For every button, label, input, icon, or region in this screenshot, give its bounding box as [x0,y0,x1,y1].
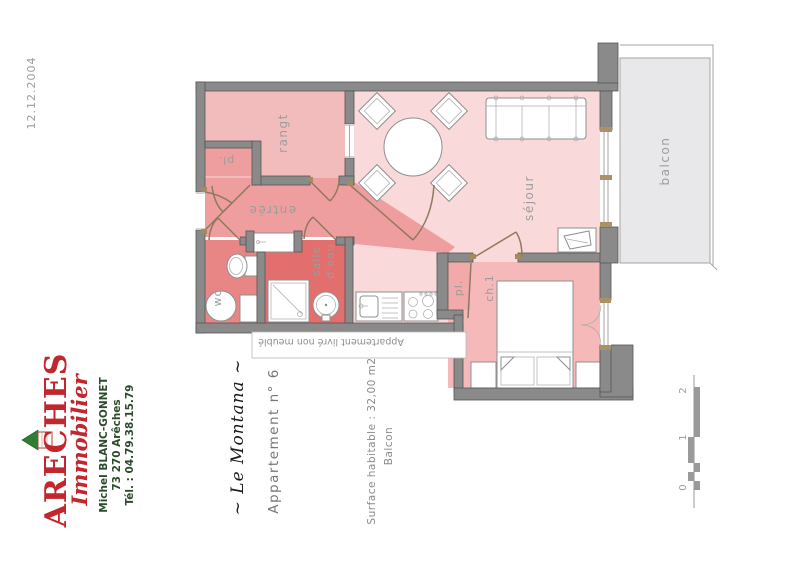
scale-bar: 2 1 0 [678,375,700,508]
floor-plan-page: rangt séjour entrée pl. wc salle d'eau p… [0,0,800,566]
scale-label-0: 0 [678,483,689,490]
agency-contact-city: 73 270 Arêches [111,399,123,490]
placard-chambre-label: pl. [452,280,465,297]
delivery-note-text: Appartement livré non meublé [258,336,404,347]
scale-label-2: 2 [678,386,689,393]
agency-logo: ARECHES Immobilier Michel BLANC-GONNET 7… [22,353,136,529]
hand-basin-niche [252,233,294,252]
agency-contact-name: Michel BLANC-GONNET [98,376,110,512]
tv-unit [558,228,596,252]
balcon-label: balcon [658,137,672,186]
floor-plan-drawing: rangt séjour entrée pl. wc salle d'eau p… [0,0,800,566]
agency-name-sub: Immobilier [67,372,92,506]
nightstand-right [576,362,601,388]
toilet [227,254,257,278]
placard-entree-label: pl. [218,154,235,167]
dining-table [384,118,442,176]
plan-date: 12.12.2004 [25,57,38,130]
apartment-number: Appartement n° 6 [266,368,282,514]
wc-label: wc [211,289,224,306]
balcony-text: Balcon [383,427,395,465]
listing-texts: ~ Le Montana ~ Appartement n° 6 Surface … [228,357,395,524]
kitchenette [356,292,438,321]
wc-cabinet [240,295,257,322]
scale-label-1: 1 [678,433,689,440]
nightstand-left [471,362,496,388]
sofa [486,96,586,141]
residence-name: ~ Le Montana ~ [228,359,248,516]
salle-deau-label-line2: d'eau [324,243,337,279]
bed [497,281,573,389]
agency-contact-phone: Tél. : 04.79.38.15.79 [124,384,136,505]
shower [268,280,309,322]
sejour-bay-window [600,127,612,227]
chambre-label: ch.1 [483,274,496,302]
salle-deau-label-line1: salle [310,246,323,276]
sejour-label: séjour [522,175,536,221]
delivery-note-box: Appartement livré non meublé [252,332,466,358]
entree-label: entrée [248,203,296,217]
rangt-label: rangt [276,113,290,153]
surface-text: Surface habitable : 32,00 m2 [366,357,378,524]
